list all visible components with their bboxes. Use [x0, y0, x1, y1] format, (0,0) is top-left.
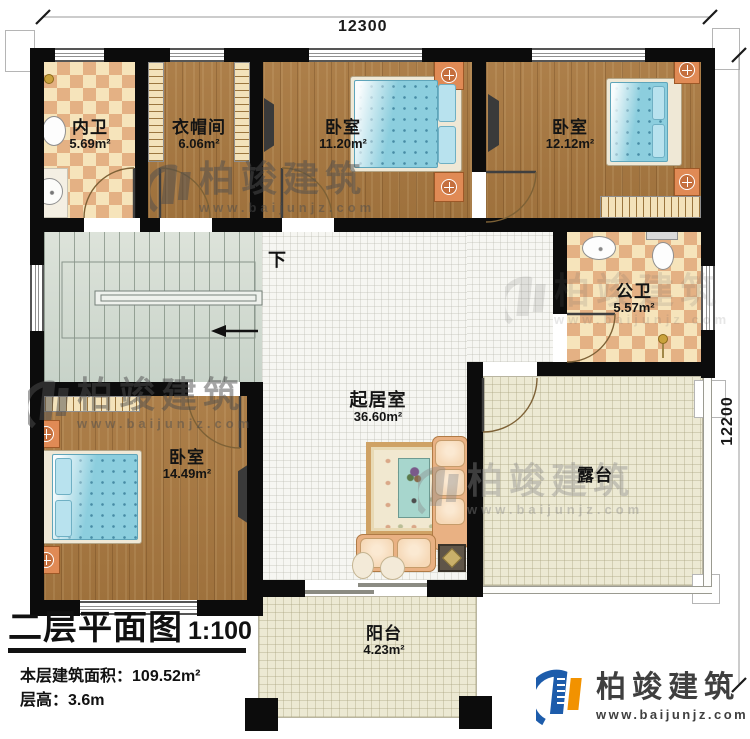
window: [701, 266, 715, 330]
dimension-width: 12300: [338, 18, 388, 36]
wall: [30, 218, 84, 232]
company-logo-icon: [536, 666, 588, 728]
wall: [247, 580, 305, 597]
balcony-column: [459, 696, 492, 729]
wall: [224, 48, 309, 62]
shower-head: [44, 74, 54, 84]
floor-area-row: 本层建筑面积：109.52m²: [20, 662, 201, 686]
floor-drain: [658, 334, 668, 344]
plan-title: 二层平面图: [8, 600, 183, 649]
room-label-balcony: 阳台 4.23m²: [298, 624, 470, 658]
sliding-door: [305, 585, 427, 592]
window: [30, 265, 44, 331]
company-name: 柏竣建筑: [596, 673, 748, 703]
ottoman: [352, 552, 374, 579]
balcony-column: [245, 698, 278, 731]
room-label-inner-bath: 内卫 5.69m²: [44, 118, 136, 152]
nightstand: [674, 168, 700, 196]
sofa-cushion: [435, 469, 465, 496]
terrace-railing-right: [703, 378, 712, 590]
wardrobe-rack: [44, 396, 140, 412]
floor-plan: 内卫 5.69m² 衣帽间 6.06m² 卧室 11.20m² 卧室 12.12…: [0, 0, 750, 739]
coffee-table: [398, 458, 430, 518]
wall: [247, 396, 263, 600]
toilet-bowl: [652, 242, 674, 270]
stairwell-floor: [44, 232, 262, 382]
company-website: www.baijunjz.com: [596, 707, 748, 722]
sink-basin: [582, 236, 616, 260]
title-underline: [8, 648, 246, 653]
floor-height-row: 层高：3.6m: [20, 686, 104, 710]
wall: [467, 376, 483, 580]
wall: [240, 382, 263, 396]
wall: [701, 330, 715, 378]
side-table: [438, 544, 466, 572]
pillow: [438, 84, 456, 122]
window: [170, 48, 224, 62]
corner-bracket: [712, 28, 740, 70]
pillow: [652, 124, 665, 158]
room-label-living: 起居室 36.60m²: [292, 390, 464, 425]
wall: [140, 218, 160, 232]
wall: [250, 60, 263, 232]
pillow: [438, 126, 456, 164]
drain-stem: [662, 344, 664, 358]
floor-area-value: 109.52m²: [132, 668, 201, 685]
sofa-cushion: [435, 440, 465, 467]
room-label-terrace: 露台: [528, 466, 662, 485]
floor-area-label: 本层建筑面积：: [20, 668, 132, 685]
pillow: [55, 458, 72, 495]
wall: [472, 60, 486, 172]
window: [532, 48, 645, 62]
wall: [701, 48, 715, 266]
wall: [467, 362, 483, 376]
wall: [537, 362, 703, 376]
wardrobe-rack: [600, 196, 701, 218]
ottoman: [380, 556, 405, 580]
window: [55, 48, 104, 62]
room-label-bedroom-top-right: 卧室 12.12m²: [490, 118, 650, 152]
sofa-cushion: [435, 498, 465, 525]
wall: [30, 48, 44, 265]
nightstand: [434, 172, 464, 202]
room-label-public-bath: 公卫 5.57m²: [567, 282, 701, 316]
dimension-depth: 12200: [719, 393, 737, 449]
pillow: [55, 500, 72, 537]
floor-height-label: 层高：: [20, 692, 68, 709]
pillow: [652, 86, 665, 120]
wall: [30, 331, 44, 616]
wall: [212, 218, 282, 232]
stairs-direction-label: 下: [268, 246, 286, 272]
plan-title-row: 二层平面图 1:100: [8, 600, 252, 649]
terrace-railing-bottom: [483, 586, 712, 594]
wall: [427, 580, 483, 597]
plan-scale: 1:100: [188, 617, 252, 646]
wall: [30, 382, 188, 396]
wall: [135, 60, 148, 218]
window: [309, 48, 422, 62]
company-logo: 柏竣建筑 www.baijunjz.com: [536, 666, 748, 728]
room-label-cloakroom: 衣帽间 6.06m²: [148, 118, 250, 152]
room-label-bedroom-top-mid: 卧室 11.20m²: [268, 118, 418, 152]
wall: [334, 218, 703, 232]
floor-height-value: 3.6m: [68, 692, 104, 709]
room-label-bedroom-left: 卧室 14.49m²: [108, 448, 266, 482]
wall: [553, 232, 567, 314]
